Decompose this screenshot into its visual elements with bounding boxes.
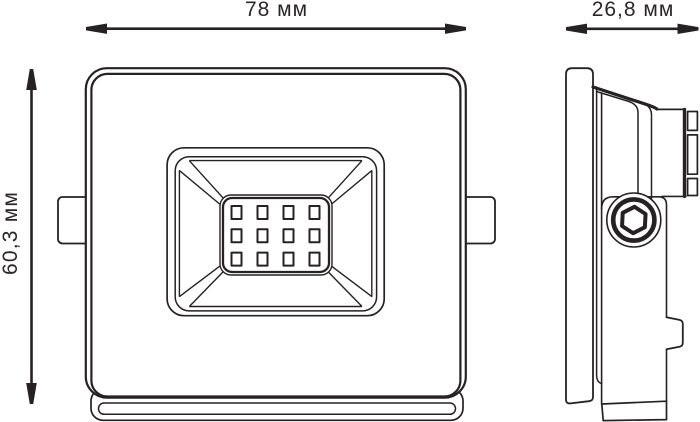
svg-text:26,8 мм: 26,8 мм [592, 0, 675, 21]
svg-text:60,3 мм: 60,3 мм [0, 191, 22, 275]
svg-text:78 мм: 78 мм [245, 0, 308, 21]
